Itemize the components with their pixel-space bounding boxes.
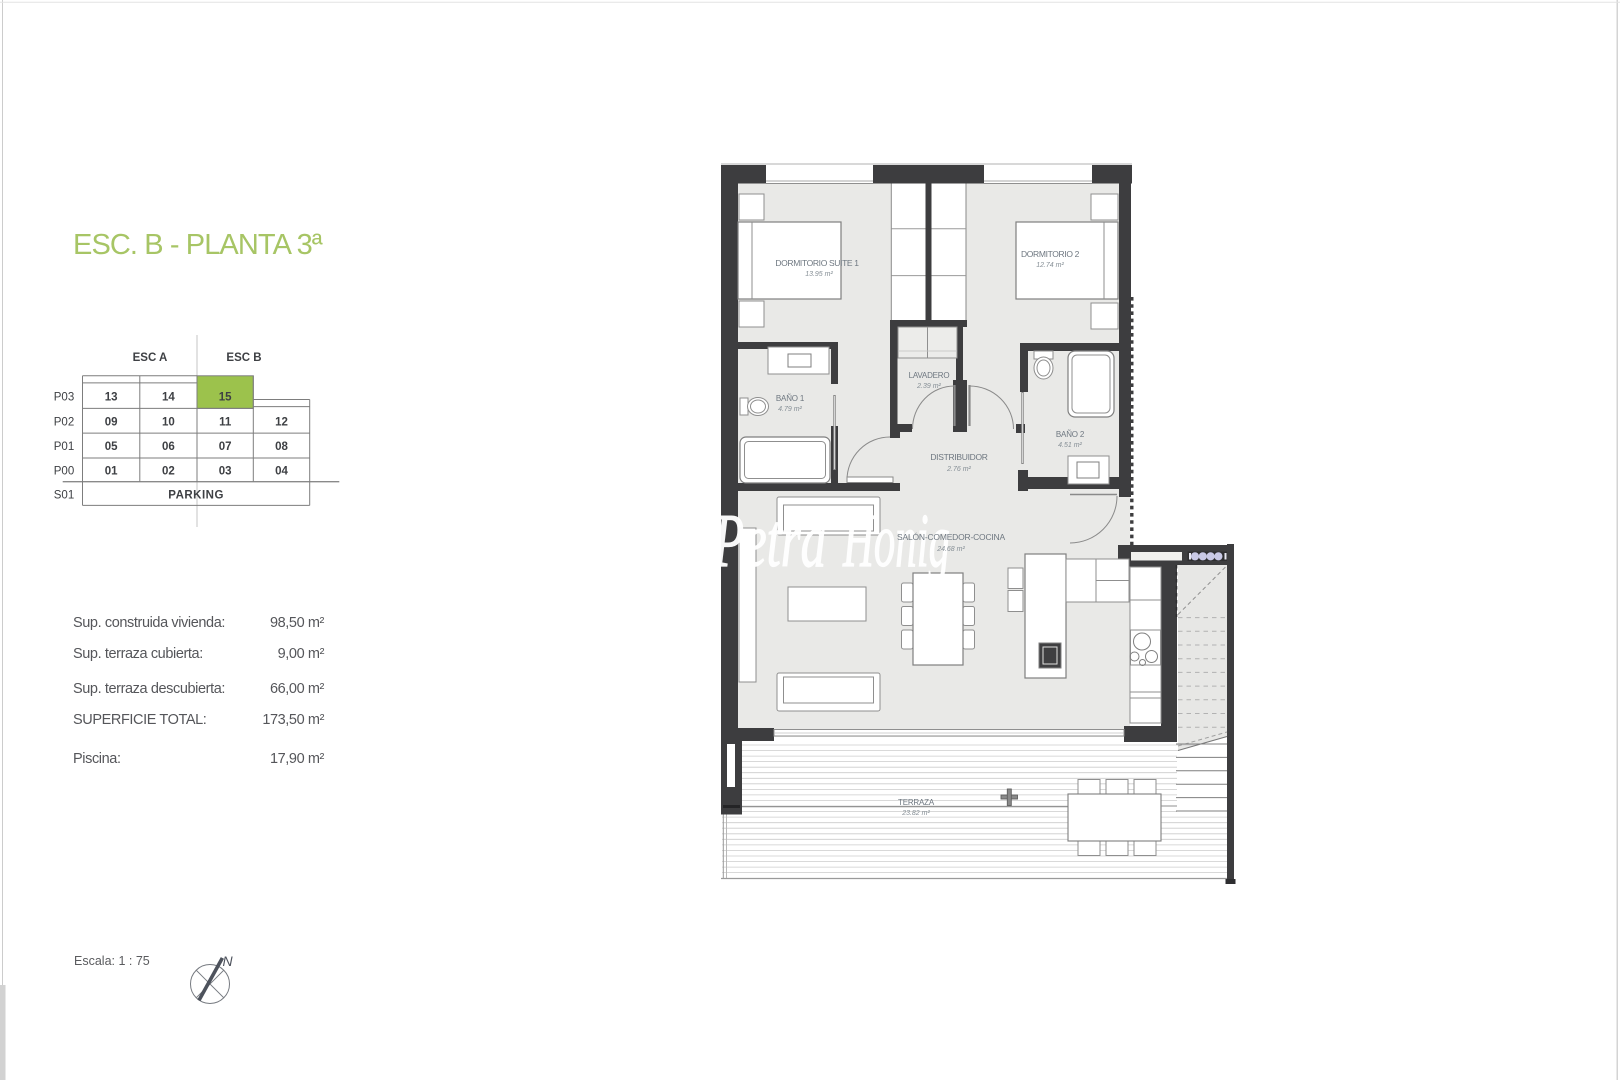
svg-text:13: 13 <box>105 392 118 404</box>
svg-text:P00: P00 <box>54 465 74 477</box>
svg-text:01: 01 <box>105 465 118 477</box>
svg-text:P01: P01 <box>54 441 74 453</box>
svg-text:Sup. construida vivienda:: Sup. construida vivienda: <box>73 615 225 631</box>
svg-text:P02: P02 <box>54 416 74 428</box>
svg-text:07: 07 <box>219 441 232 453</box>
svg-text:Escala: 1 : 75: Escala: 1 : 75 <box>74 954 150 968</box>
svg-text:DORMITORIO SUITE 1: DORMITORIO SUITE 1 <box>775 258 859 268</box>
svg-text:03: 03 <box>219 465 232 477</box>
svg-text:23.82 m²: 23.82 m² <box>901 810 930 817</box>
svg-text:Sup. terraza cubierta:: Sup. terraza cubierta: <box>73 646 203 662</box>
svg-text:ESC. B - PLANTA 3ª: ESC. B - PLANTA 3ª <box>73 229 323 261</box>
svg-text:14: 14 <box>162 392 175 404</box>
svg-text:08: 08 <box>275 441 288 453</box>
svg-text:173,50 m²: 173,50 m² <box>262 712 324 728</box>
svg-text:Piscina:: Piscina: <box>73 751 121 767</box>
svg-text:13.95 m²: 13.95 m² <box>805 271 833 278</box>
svg-text:11: 11 <box>219 416 232 428</box>
svg-text:2.76 m²: 2.76 m² <box>946 466 971 473</box>
svg-text:06: 06 <box>162 441 175 453</box>
svg-text:SUPERFICIE TOTAL:: SUPERFICIE TOTAL: <box>73 712 206 728</box>
svg-text:10: 10 <box>162 416 175 428</box>
svg-text:02: 02 <box>162 465 175 477</box>
svg-text:ESC B: ESC B <box>226 352 261 364</box>
svg-text:04: 04 <box>275 465 288 477</box>
svg-text:DORMITORIO 2: DORMITORIO 2 <box>1021 249 1080 259</box>
svg-text:4.51 m²: 4.51 m² <box>1058 442 1082 449</box>
svg-text:BAÑO 1: BAÑO 1 <box>776 394 805 403</box>
svg-text:09: 09 <box>105 416 118 428</box>
svg-text:BAÑO 2: BAÑO 2 <box>1056 430 1085 439</box>
svg-text:66,00 m²: 66,00 m² <box>270 681 325 697</box>
svg-text:98,50 m²: 98,50 m² <box>270 615 325 631</box>
svg-text:12: 12 <box>275 416 288 428</box>
svg-text:N: N <box>223 953 234 969</box>
svg-text:Petra: Petra <box>712 499 826 583</box>
svg-text:PARKING: PARKING <box>168 489 224 501</box>
svg-text:Sup. terraza descubierta:: Sup. terraza descubierta: <box>73 681 225 697</box>
svg-text:17,90 m²: 17,90 m² <box>270 751 325 767</box>
svg-text:24.68 m²: 24.68 m² <box>936 546 965 553</box>
svg-text:05: 05 <box>105 441 118 453</box>
svg-text:15: 15 <box>219 392 232 404</box>
svg-text:SALÓN-COMEDOR-COCINA: SALÓN-COMEDOR-COCINA <box>897 532 1005 542</box>
svg-text:TERRAZA: TERRAZA <box>898 798 935 807</box>
svg-text:12.74 m²: 12.74 m² <box>1036 262 1064 269</box>
svg-text:2.39 m²: 2.39 m² <box>916 383 941 390</box>
svg-text:P03: P03 <box>54 392 74 404</box>
svg-text:4.79 m²: 4.79 m² <box>778 406 802 413</box>
svg-text:LAVADERO: LAVADERO <box>909 371 950 380</box>
svg-text:S01: S01 <box>54 489 74 501</box>
svg-text:DISTRIBUIDOR: DISTRIBUIDOR <box>930 452 987 462</box>
svg-text:9,00 m²: 9,00 m² <box>278 646 325 662</box>
svg-text:ESC A: ESC A <box>133 352 168 364</box>
